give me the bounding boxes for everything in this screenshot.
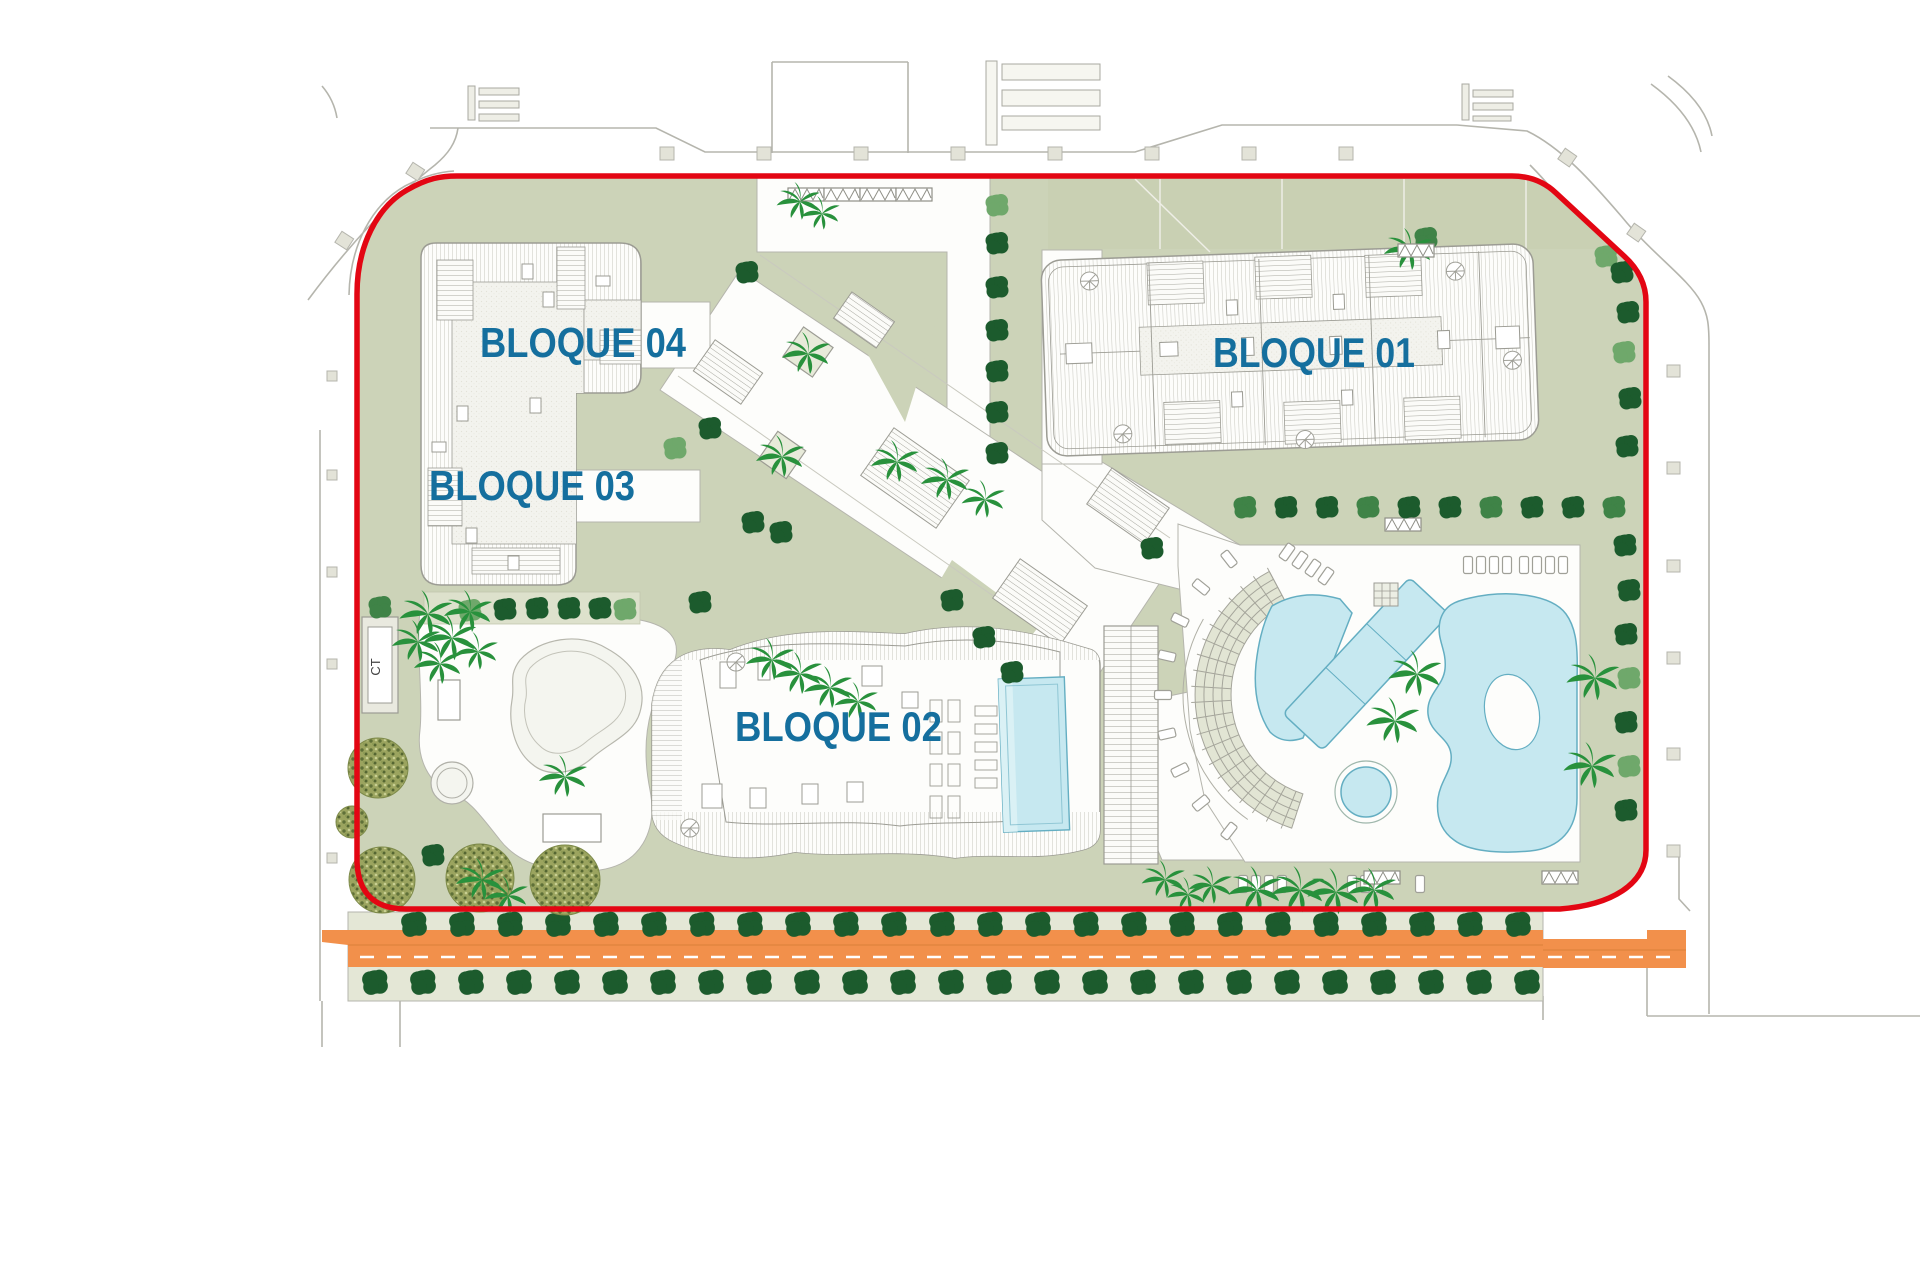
svg-text:BLOQUE 02: BLOQUE 02 xyxy=(735,703,942,750)
svg-text:CT: CT xyxy=(368,658,383,675)
svg-text:BLOQUE 01: BLOQUE 01 xyxy=(1213,329,1415,376)
svg-text:BLOQUE 04: BLOQUE 04 xyxy=(480,319,687,366)
svg-text:BLOQUE 03: BLOQUE 03 xyxy=(429,462,635,509)
